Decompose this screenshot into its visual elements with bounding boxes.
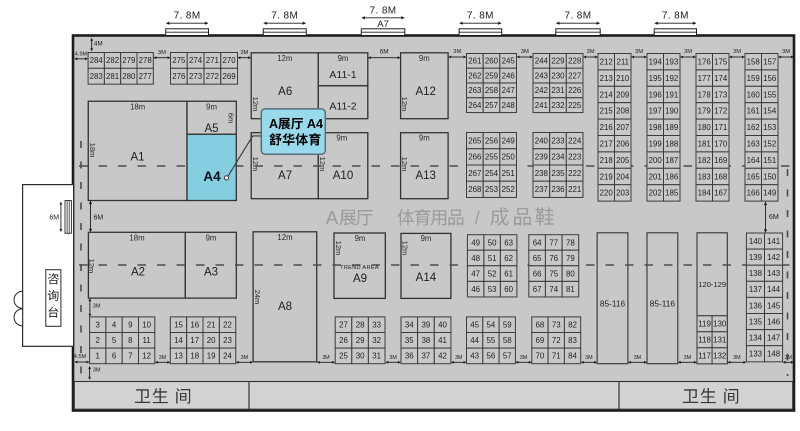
svg-text:243: 243: [535, 71, 549, 80]
svg-text:37: 37: [422, 352, 431, 361]
svg-text:7. 8M: 7. 8M: [564, 11, 591, 22]
svg-text:167: 167: [714, 189, 727, 198]
svg-text:18: 18: [190, 352, 199, 361]
svg-text:177: 177: [698, 74, 711, 83]
svg-text:170: 170: [714, 140, 728, 149]
svg-text:20: 20: [207, 336, 216, 345]
svg-text:257: 257: [485, 101, 498, 110]
svg-text:237: 237: [535, 185, 548, 194]
svg-text:3M: 3M: [93, 304, 101, 310]
svg-text:182: 182: [698, 156, 711, 165]
svg-text:281: 281: [106, 72, 119, 81]
svg-text:132: 132: [713, 352, 727, 361]
svg-text:15: 15: [174, 321, 183, 330]
svg-text:279: 279: [122, 56, 136, 65]
svg-text:274: 274: [189, 56, 203, 65]
svg-text:244: 244: [535, 57, 549, 66]
svg-text:3M: 3M: [684, 355, 692, 361]
svg-text:12m: 12m: [400, 157, 409, 172]
svg-text:154: 154: [763, 107, 777, 116]
svg-text:7: 7: [128, 352, 132, 361]
svg-text:207: 207: [616, 123, 629, 132]
svg-text:A2: A2: [131, 267, 145, 279]
svg-text:226: 226: [568, 86, 582, 95]
svg-text:77: 77: [549, 238, 558, 247]
svg-text:6M: 6M: [769, 212, 779, 221]
svg-text:12m: 12m: [334, 241, 343, 256]
svg-text:9m: 9m: [419, 54, 430, 63]
svg-text:3M: 3M: [158, 50, 166, 56]
svg-text:270: 270: [223, 56, 237, 65]
svg-text:76: 76: [549, 254, 558, 263]
svg-text:58: 58: [503, 336, 512, 345]
svg-text:34: 34: [405, 321, 414, 330]
svg-text:183: 183: [698, 172, 712, 181]
svg-text:39: 39: [422, 321, 431, 330]
svg-text:144: 144: [767, 285, 781, 294]
svg-text:9m: 9m: [206, 233, 217, 242]
svg-text:156: 156: [763, 74, 777, 83]
svg-text:28: 28: [356, 321, 365, 330]
svg-text:A4: A4: [307, 117, 323, 131]
svg-text:142: 142: [767, 253, 780, 262]
svg-text:252: 252: [502, 185, 515, 194]
svg-text:3M: 3M: [635, 49, 643, 55]
svg-text:280: 280: [122, 72, 136, 81]
svg-text:185: 185: [665, 189, 679, 198]
svg-text:271: 271: [206, 56, 219, 65]
svg-text:264: 264: [468, 101, 482, 110]
svg-text:6: 6: [112, 352, 117, 361]
svg-text:54: 54: [487, 321, 496, 330]
svg-text:282: 282: [106, 56, 119, 65]
svg-text:8: 8: [128, 336, 133, 345]
svg-text:66: 66: [533, 269, 542, 278]
svg-text:43: 43: [470, 352, 479, 361]
svg-text:245: 245: [502, 57, 516, 66]
svg-text:12m: 12m: [400, 97, 409, 112]
svg-text:239: 239: [535, 153, 549, 162]
svg-text:13: 13: [174, 352, 183, 361]
svg-text:174: 174: [714, 74, 728, 83]
svg-text:159: 159: [747, 74, 761, 83]
svg-text:23: 23: [223, 336, 232, 345]
svg-text:198: 198: [649, 123, 663, 132]
svg-text:196: 196: [649, 90, 663, 99]
svg-text:81: 81: [566, 285, 575, 294]
svg-text:7. 8M: 7. 8M: [370, 6, 397, 17]
svg-text:38: 38: [422, 336, 431, 345]
svg-text:A: A: [326, 207, 339, 228]
svg-text:32: 32: [372, 336, 381, 345]
svg-text:197: 197: [649, 107, 662, 116]
svg-text:36: 36: [405, 352, 414, 361]
svg-text:60: 60: [504, 285, 513, 294]
svg-text:192: 192: [665, 74, 678, 83]
svg-text:68: 68: [536, 321, 545, 330]
svg-text:204: 204: [616, 172, 630, 181]
svg-text:229: 229: [551, 57, 565, 66]
svg-text:56: 56: [487, 352, 496, 361]
svg-text:173: 173: [714, 90, 728, 99]
svg-text:3M: 3M: [782, 49, 790, 55]
svg-text:255: 255: [485, 153, 499, 162]
svg-text:A7: A7: [278, 170, 292, 182]
svg-text:120-129: 120-129: [698, 280, 726, 289]
svg-text:136: 136: [749, 301, 763, 310]
svg-text:172: 172: [714, 107, 727, 116]
svg-text:283: 283: [90, 72, 104, 81]
svg-text:231: 231: [551, 86, 564, 95]
svg-text:3M: 3M: [93, 368, 101, 374]
svg-text:4.9M: 4.9M: [75, 51, 88, 57]
svg-text:A13: A13: [415, 170, 435, 182]
svg-text:52: 52: [488, 269, 497, 278]
svg-text:133: 133: [749, 350, 763, 359]
svg-text:64: 64: [533, 238, 542, 247]
svg-text:6m: 6m: [226, 113, 235, 124]
svg-text:7. 8M: 7. 8M: [467, 11, 494, 22]
svg-text:228: 228: [568, 57, 582, 66]
svg-text:263: 263: [468, 86, 482, 95]
svg-text:59: 59: [503, 321, 512, 330]
svg-text:145: 145: [767, 301, 781, 310]
svg-text:150: 150: [763, 172, 777, 181]
svg-text:26: 26: [339, 336, 348, 345]
svg-text:A6: A6: [278, 86, 292, 98]
svg-text:A5: A5: [204, 123, 218, 135]
svg-text:62: 62: [504, 254, 513, 263]
svg-text:9m: 9m: [206, 102, 217, 111]
svg-text:2: 2: [96, 336, 100, 345]
svg-text:217: 217: [600, 140, 613, 149]
svg-text:267: 267: [468, 169, 481, 178]
svg-text:223: 223: [568, 153, 582, 162]
svg-text:51: 51: [488, 254, 497, 263]
svg-text:236: 236: [551, 185, 565, 194]
svg-text:27: 27: [339, 321, 348, 330]
svg-text:21: 21: [207, 321, 216, 330]
svg-text:14: 14: [174, 336, 183, 345]
svg-text:9: 9: [128, 321, 133, 330]
svg-text:19: 19: [207, 352, 216, 361]
svg-text:82: 82: [568, 321, 577, 330]
svg-text:130: 130: [713, 320, 727, 329]
svg-text:55: 55: [487, 336, 496, 345]
svg-text:A12: A12: [415, 86, 435, 98]
svg-text:11: 11: [143, 336, 151, 345]
svg-text:273: 273: [189, 72, 203, 81]
svg-text:7. 8M: 7. 8M: [662, 11, 689, 22]
svg-text:12m: 12m: [87, 259, 96, 274]
svg-text:24m: 24m: [253, 290, 262, 305]
svg-text:240: 240: [535, 136, 549, 145]
svg-text:157: 157: [763, 58, 776, 67]
svg-text:A1: A1: [130, 152, 144, 164]
svg-text:134: 134: [749, 333, 763, 342]
svg-text:29: 29: [356, 336, 365, 345]
svg-text:85-116: 85-116: [650, 299, 676, 309]
svg-text:153: 153: [763, 123, 777, 132]
svg-text:73: 73: [552, 321, 561, 330]
svg-text:22: 22: [223, 321, 232, 330]
svg-text:25: 25: [339, 352, 348, 361]
svg-text:3M: 3M: [733, 49, 741, 55]
svg-text:A: A: [269, 117, 278, 131]
svg-text:79: 79: [566, 254, 575, 263]
svg-text:219: 219: [600, 172, 614, 181]
svg-text:69: 69: [536, 336, 545, 345]
svg-text:3M: 3M: [586, 49, 594, 55]
svg-text:33: 33: [372, 321, 381, 330]
svg-text:A7: A7: [377, 19, 389, 30]
svg-text:5: 5: [112, 336, 117, 345]
svg-text:A4: A4: [203, 169, 221, 184]
svg-text:137: 137: [749, 285, 762, 294]
svg-text:12m: 12m: [251, 157, 260, 172]
svg-text:277: 277: [139, 72, 152, 81]
svg-text:3M: 3M: [520, 355, 528, 361]
svg-text:72: 72: [552, 336, 561, 345]
svg-text:163: 163: [747, 140, 761, 149]
svg-text:242: 242: [535, 86, 548, 95]
svg-text:3M: 3M: [240, 50, 248, 56]
svg-text:234: 234: [551, 153, 565, 162]
svg-text:259: 259: [485, 71, 499, 80]
svg-text:181: 181: [698, 140, 711, 149]
svg-text:171: 171: [714, 123, 727, 132]
svg-text:191: 191: [665, 90, 678, 99]
svg-text:180: 180: [698, 123, 712, 132]
svg-text:3M: 3M: [159, 355, 167, 361]
svg-text:276: 276: [172, 72, 186, 81]
svg-text:A11-1: A11-1: [329, 69, 356, 81]
svg-text:9m: 9m: [336, 134, 347, 143]
svg-text:9m: 9m: [421, 234, 432, 243]
svg-text:275: 275: [172, 56, 186, 65]
svg-text:3M: 3M: [684, 49, 692, 55]
svg-text:254: 254: [485, 169, 499, 178]
svg-text:272: 272: [206, 72, 219, 81]
svg-text:262: 262: [468, 71, 481, 80]
svg-text:138: 138: [749, 269, 763, 278]
svg-text:A10: A10: [333, 170, 353, 182]
svg-text:162: 162: [747, 123, 760, 132]
svg-text:40: 40: [438, 321, 447, 330]
svg-text:147: 147: [767, 333, 780, 342]
svg-text:A8: A8: [278, 301, 292, 313]
svg-text:18m: 18m: [129, 233, 144, 242]
svg-text:208: 208: [616, 107, 630, 116]
svg-text:166: 166: [747, 189, 761, 198]
svg-text:160: 160: [747, 90, 761, 99]
svg-text:7. 8M: 7. 8M: [271, 11, 298, 22]
svg-text:175: 175: [714, 58, 728, 67]
svg-text:250: 250: [502, 153, 516, 162]
svg-text:246: 246: [502, 71, 516, 80]
svg-text:45: 45: [470, 321, 479, 330]
svg-text:139: 139: [749, 253, 763, 262]
svg-text:251: 251: [502, 169, 515, 178]
svg-text:1: 1: [96, 352, 100, 361]
svg-text:4.5M: 4.5M: [74, 354, 87, 360]
svg-text:209: 209: [616, 90, 630, 99]
svg-text:216: 216: [600, 123, 614, 132]
svg-text:78: 78: [566, 238, 575, 247]
svg-text:214: 214: [600, 90, 614, 99]
svg-text:241: 241: [535, 101, 548, 110]
svg-text:178: 178: [698, 90, 712, 99]
svg-text:4M: 4M: [94, 41, 103, 48]
svg-text:9m: 9m: [419, 134, 430, 143]
svg-text:35: 35: [405, 336, 414, 345]
svg-text:3M: 3M: [455, 355, 463, 361]
svg-text:212: 212: [600, 58, 613, 67]
svg-text:6M: 6M: [94, 215, 104, 222]
svg-text:A9: A9: [353, 273, 367, 285]
svg-text:75: 75: [549, 269, 558, 278]
svg-text:164: 164: [747, 156, 761, 165]
svg-text:260: 260: [485, 57, 499, 66]
svg-text:7. 8M: 7. 8M: [174, 11, 201, 22]
svg-text:202: 202: [649, 189, 662, 198]
svg-text:3M: 3M: [389, 355, 397, 361]
svg-text:18m: 18m: [130, 102, 145, 111]
svg-text:249: 249: [502, 136, 516, 145]
svg-text:48: 48: [471, 254, 480, 263]
svg-text:135: 135: [749, 317, 763, 326]
svg-text:195: 195: [649, 74, 663, 83]
svg-text:146: 146: [767, 317, 781, 326]
svg-text:190: 190: [665, 107, 679, 116]
svg-text:47: 47: [471, 269, 480, 278]
svg-text:188: 188: [665, 140, 679, 149]
svg-text:266: 266: [468, 153, 482, 162]
svg-text:176: 176: [698, 58, 712, 67]
svg-text:155: 155: [763, 90, 777, 99]
svg-text:247: 247: [502, 86, 515, 95]
svg-text:187: 187: [665, 156, 678, 165]
svg-text:161: 161: [747, 107, 760, 116]
svg-text:200: 200: [649, 156, 663, 165]
svg-text:44: 44: [470, 336, 479, 345]
svg-text:165: 165: [747, 172, 761, 181]
svg-text:61: 61: [504, 269, 513, 278]
svg-text:3M: 3M: [785, 355, 793, 361]
svg-text:232: 232: [551, 101, 564, 110]
svg-text:248: 248: [502, 101, 516, 110]
svg-text:269: 269: [223, 72, 237, 81]
svg-text:10: 10: [142, 321, 151, 330]
svg-text:57: 57: [503, 352, 512, 361]
svg-text:118: 118: [698, 336, 711, 345]
svg-text:12m: 12m: [318, 157, 327, 172]
svg-text:3M: 3M: [322, 355, 330, 361]
svg-text:140: 140: [749, 237, 763, 246]
svg-text:3M: 3M: [733, 355, 741, 361]
svg-text:131: 131: [713, 336, 727, 345]
svg-text:6M: 6M: [49, 214, 59, 221]
svg-text:213: 213: [600, 74, 614, 83]
svg-text:70: 70: [536, 352, 545, 361]
svg-text:6M: 6M: [380, 49, 389, 56]
svg-text:65: 65: [533, 254, 542, 263]
svg-text:253: 253: [485, 185, 499, 194]
svg-text:42: 42: [438, 352, 447, 361]
svg-text:179: 179: [698, 107, 712, 116]
svg-text:224: 224: [568, 136, 582, 145]
svg-text:67: 67: [533, 285, 542, 294]
svg-text:205: 205: [616, 156, 630, 165]
svg-text:/: /: [475, 208, 480, 228]
svg-text:225: 225: [568, 101, 582, 110]
svg-text:84: 84: [568, 352, 577, 361]
svg-text:63: 63: [504, 238, 513, 247]
svg-text:17: 17: [190, 336, 199, 345]
svg-text:222: 222: [568, 169, 581, 178]
svg-text:85-116: 85-116: [600, 299, 626, 309]
svg-text:184: 184: [698, 189, 712, 198]
svg-text:265: 265: [468, 136, 482, 145]
svg-text:80: 80: [566, 269, 575, 278]
svg-text:168: 168: [714, 172, 728, 181]
svg-text:3M: 3M: [453, 49, 461, 55]
svg-text:152: 152: [763, 140, 776, 149]
svg-text:194: 194: [649, 58, 663, 67]
svg-text:A14: A14: [416, 272, 437, 284]
svg-text:233: 233: [551, 136, 565, 145]
svg-text:215: 215: [600, 107, 614, 116]
svg-text:12m: 12m: [251, 97, 260, 112]
svg-text:211: 211: [616, 58, 629, 67]
svg-text:18m: 18m: [88, 143, 97, 158]
svg-text:193: 193: [665, 58, 679, 67]
svg-text:186: 186: [665, 172, 679, 181]
svg-text:30: 30: [356, 352, 365, 361]
svg-text:218: 218: [600, 156, 614, 165]
svg-text:117: 117: [698, 352, 711, 361]
svg-text:210: 210: [616, 74, 630, 83]
svg-text:49: 49: [471, 238, 480, 247]
svg-text:238: 238: [535, 169, 549, 178]
svg-text:4: 4: [112, 321, 117, 330]
svg-text:169: 169: [714, 156, 728, 165]
svg-text:12m: 12m: [277, 54, 292, 63]
svg-text:206: 206: [616, 140, 630, 149]
svg-text:221: 221: [568, 185, 581, 194]
svg-text:151: 151: [763, 156, 776, 165]
svg-text:199: 199: [649, 140, 663, 149]
svg-text:31: 31: [372, 352, 381, 361]
svg-text:261: 261: [468, 57, 481, 66]
svg-text:53: 53: [488, 285, 497, 294]
svg-text:278: 278: [139, 56, 153, 65]
svg-text:A3: A3: [204, 267, 218, 279]
svg-text:227: 227: [568, 71, 581, 80]
svg-text:3M: 3M: [634, 355, 642, 361]
svg-text:50: 50: [488, 238, 497, 247]
svg-text:12m: 12m: [401, 241, 410, 256]
svg-text:3M: 3M: [241, 355, 249, 361]
svg-text:220: 220: [600, 189, 614, 198]
svg-text:148: 148: [767, 350, 781, 359]
svg-text:A11-2: A11-2: [329, 101, 356, 113]
svg-text:119: 119: [698, 320, 711, 329]
svg-text:9m: 9m: [338, 54, 349, 63]
svg-text:230: 230: [551, 71, 565, 80]
svg-text:201: 201: [649, 172, 662, 181]
svg-text:284: 284: [90, 56, 104, 65]
